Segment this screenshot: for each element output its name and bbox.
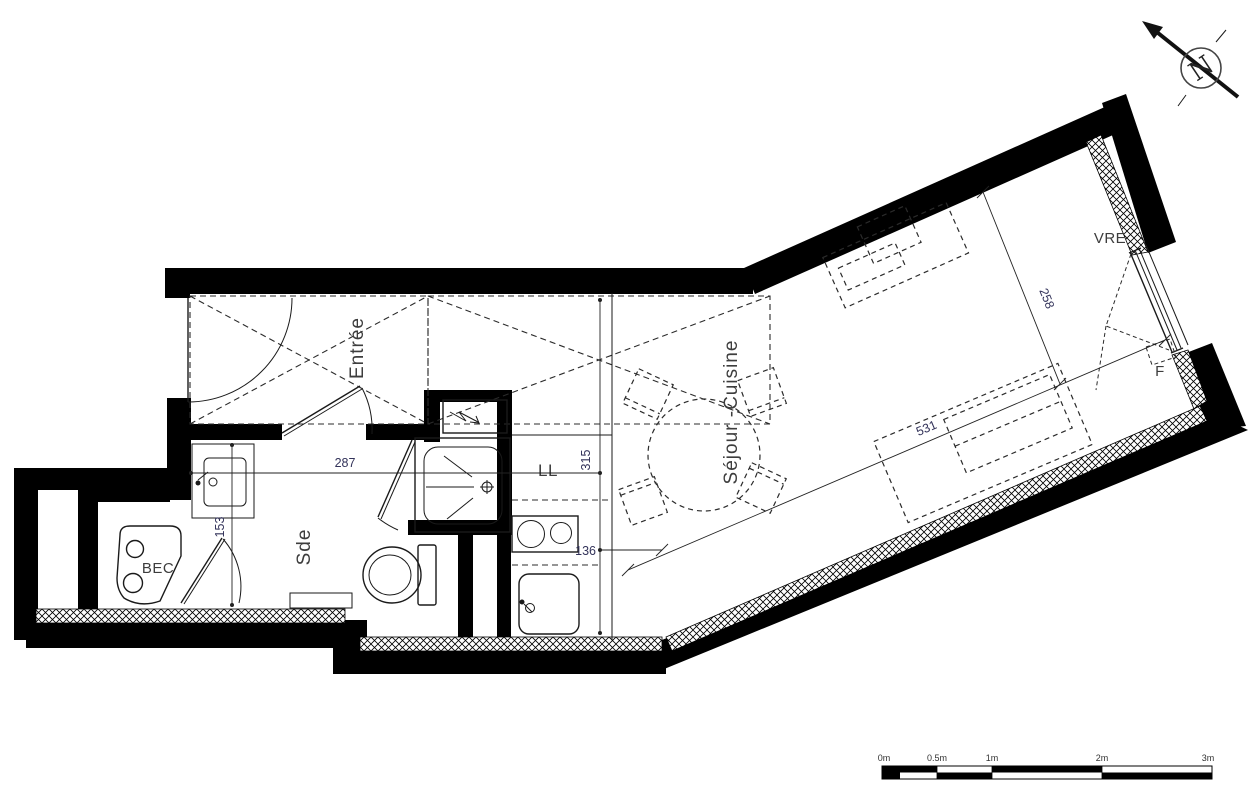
closet-zone-1 xyxy=(190,296,428,424)
dim-258-label: 258 xyxy=(1036,286,1057,311)
window-vre xyxy=(1129,245,1188,353)
scale-tick-0m: 0m xyxy=(878,753,891,763)
kitchen-counter xyxy=(512,293,612,640)
dining-chair xyxy=(623,369,673,419)
room-label-sejour-cuisine: Séjour -Cuisine xyxy=(721,340,742,485)
room-label-sde: Sde xyxy=(294,529,315,566)
room-label-bec: BEC xyxy=(142,560,174,577)
toilet xyxy=(363,545,436,605)
floor-plan-page: VRE F Entrée Sde xyxy=(0,0,1257,800)
dim-136 xyxy=(598,544,668,556)
kitchen-sink xyxy=(519,574,579,634)
dim-287-label: 287 xyxy=(335,456,356,470)
north-arrow: N xyxy=(1142,21,1238,106)
washbasin xyxy=(192,444,254,518)
dim-315 xyxy=(598,298,602,635)
entry-door xyxy=(188,298,292,402)
radiator xyxy=(290,593,352,608)
label-washing-machine: LL xyxy=(538,461,558,480)
scale-tick-3m: 3m xyxy=(1202,753,1215,763)
scale-tick-2m: 2m xyxy=(1096,753,1109,763)
shower-door xyxy=(378,440,415,530)
dim-315-label: 315 xyxy=(579,450,593,471)
dim-153 xyxy=(230,443,234,607)
insulation-hatch xyxy=(36,135,1207,651)
shower xyxy=(415,438,510,532)
floor-plan-drawing: VRE F Entrée Sde xyxy=(0,0,1257,800)
sde-door xyxy=(282,386,372,436)
dining-table xyxy=(648,399,760,511)
dim-258 xyxy=(977,186,1066,390)
closet-zone-2 xyxy=(428,296,770,424)
dim-136-label: 136 xyxy=(575,544,596,558)
scale-tick-1m: 1m xyxy=(986,753,999,763)
scale-tick-05m: 0.5m xyxy=(927,753,947,763)
dining-chair xyxy=(738,368,787,417)
dining-chair xyxy=(619,477,668,526)
cooktop xyxy=(512,516,578,552)
room-label-entree: Entrée xyxy=(347,317,368,379)
dim-153-label: 153 xyxy=(213,517,227,538)
label-f: F xyxy=(1155,363,1165,380)
label-vre: VRE xyxy=(1094,230,1126,247)
dim-531-label: 531 xyxy=(914,418,939,439)
scale-bar: 0m 0.5m 1m 2m 3m xyxy=(878,753,1215,779)
